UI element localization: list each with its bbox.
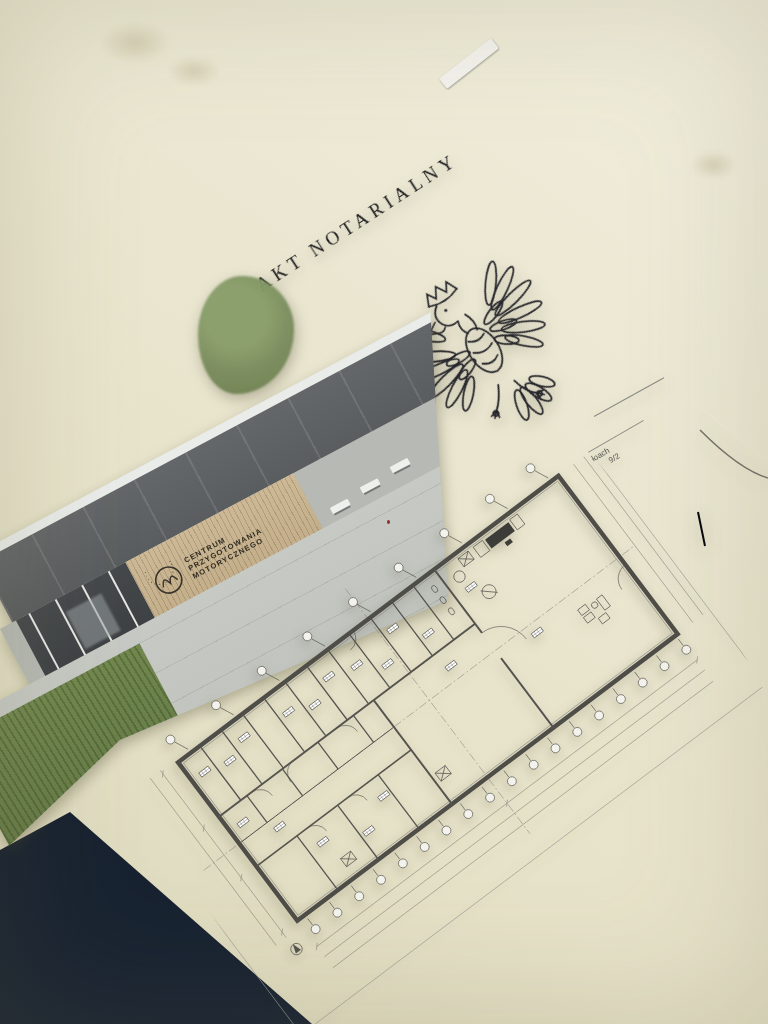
desk-scene: AKT NOTARIALNY: [0, 0, 768, 1024]
bench-bike: [390, 458, 411, 474]
desk-smudge: [100, 22, 170, 64]
bench-bike: [360, 478, 381, 494]
desk-smudge: [690, 150, 736, 180]
desk-smudge: [168, 56, 220, 86]
bench-bike: [330, 499, 351, 515]
cpm-logo-icon: [144, 557, 190, 603]
tree: [198, 276, 294, 394]
red-speck: [387, 520, 390, 524]
